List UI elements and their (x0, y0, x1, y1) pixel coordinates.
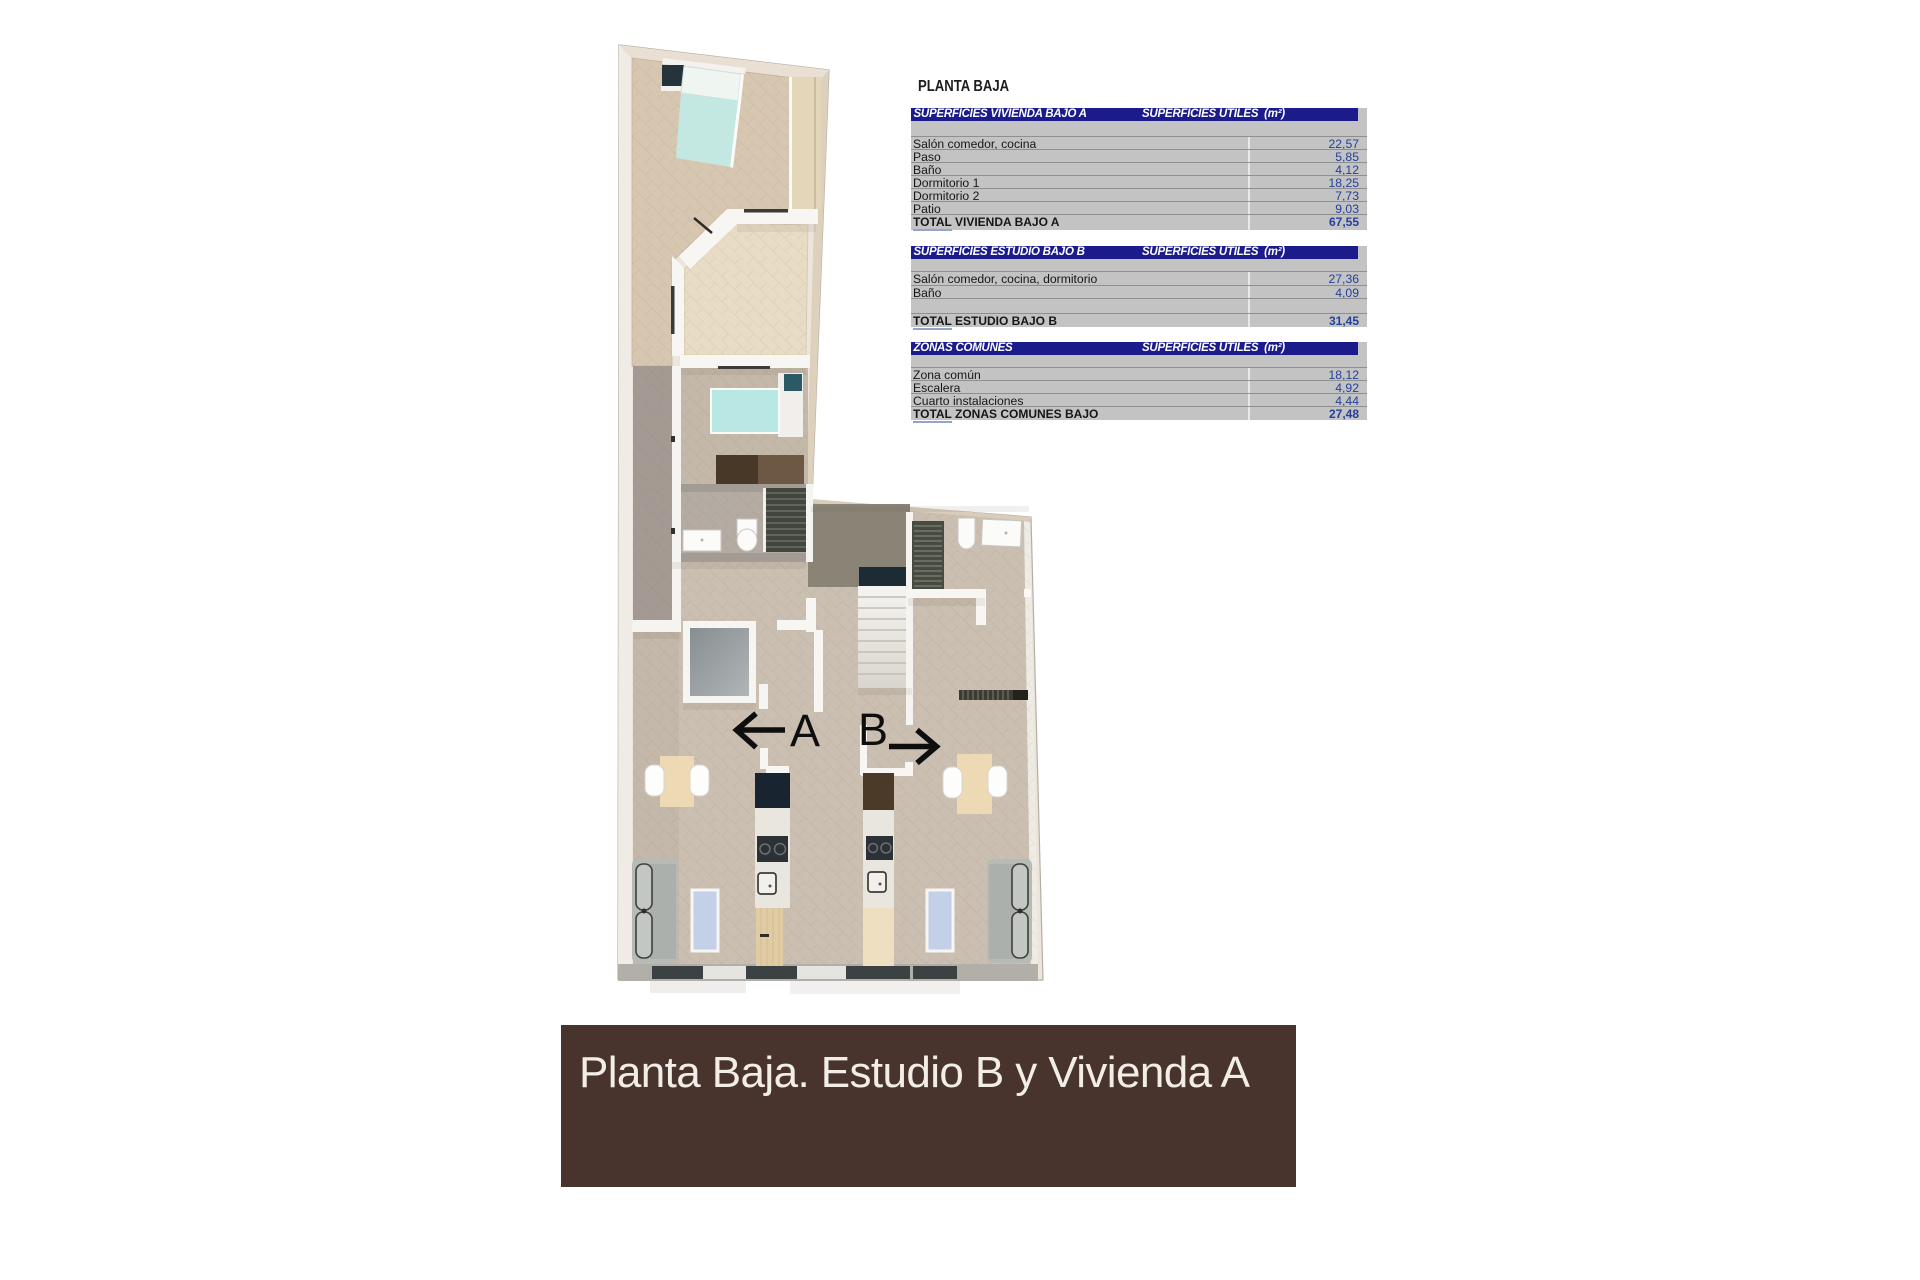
svg-text:A: A (790, 705, 820, 756)
svg-text:B: B (858, 704, 888, 755)
